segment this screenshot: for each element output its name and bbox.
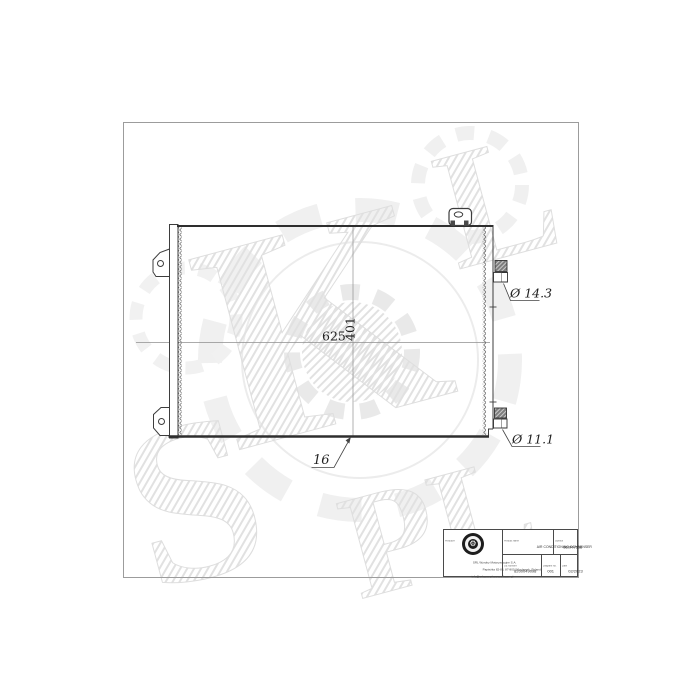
diagram-no-value: 001 — [542, 563, 560, 581]
technical-drawing: S K L PL — [0, 0, 700, 700]
dim-height-label: 401 — [343, 317, 358, 341]
right-fin-edge — [483, 227, 486, 435]
producer-cell: Producer ⚙ SRL Wyroby Motoryzacyjne S.A.… — [444, 530, 503, 576]
inlet-diameter-label: Ø 14.3 — [509, 286, 552, 301]
gear-icon: ⚙ — [468, 539, 478, 549]
left-fin-edge — [178, 227, 181, 435]
company-address: SRL Wyroby Motoryzacyjne S.A. Papieżka 8… — [444, 559, 502, 581]
company-logo: ⚙ — [462, 533, 484, 555]
title-block: Producer ⚙ SRL Wyroby Motoryzacyjne S.A.… — [443, 529, 578, 577]
drawing-page: S K L PL — [0, 0, 700, 700]
oe-number-value: 8200049098 — [503, 563, 541, 581]
outlet-fitting — [494, 408, 508, 428]
dim-thickness-label: 16 — [313, 453, 330, 468]
outlet-diameter-label: Ø 11.1 — [511, 432, 554, 447]
inlet-fitting — [494, 261, 508, 283]
mounting-bracket-top — [449, 209, 472, 226]
date-cell: Date 02/2023 — [561, 555, 577, 576]
left-side-plate — [170, 225, 179, 439]
mounting-bracket-top-left — [153, 249, 170, 277]
date-value: 02/2023 — [561, 563, 577, 581]
mounting-bracket-bottom-left — [154, 408, 170, 436]
symbol-cell: Symbol 860RV558 — [554, 530, 577, 555]
product-name-cell: Product name AIR CONDITIONING CONDENSER — [503, 530, 554, 555]
oe-number-cell: OE Number 8200049098 — [503, 555, 542, 576]
diagram-no-cell: Diagram No. 001 — [542, 555, 561, 576]
